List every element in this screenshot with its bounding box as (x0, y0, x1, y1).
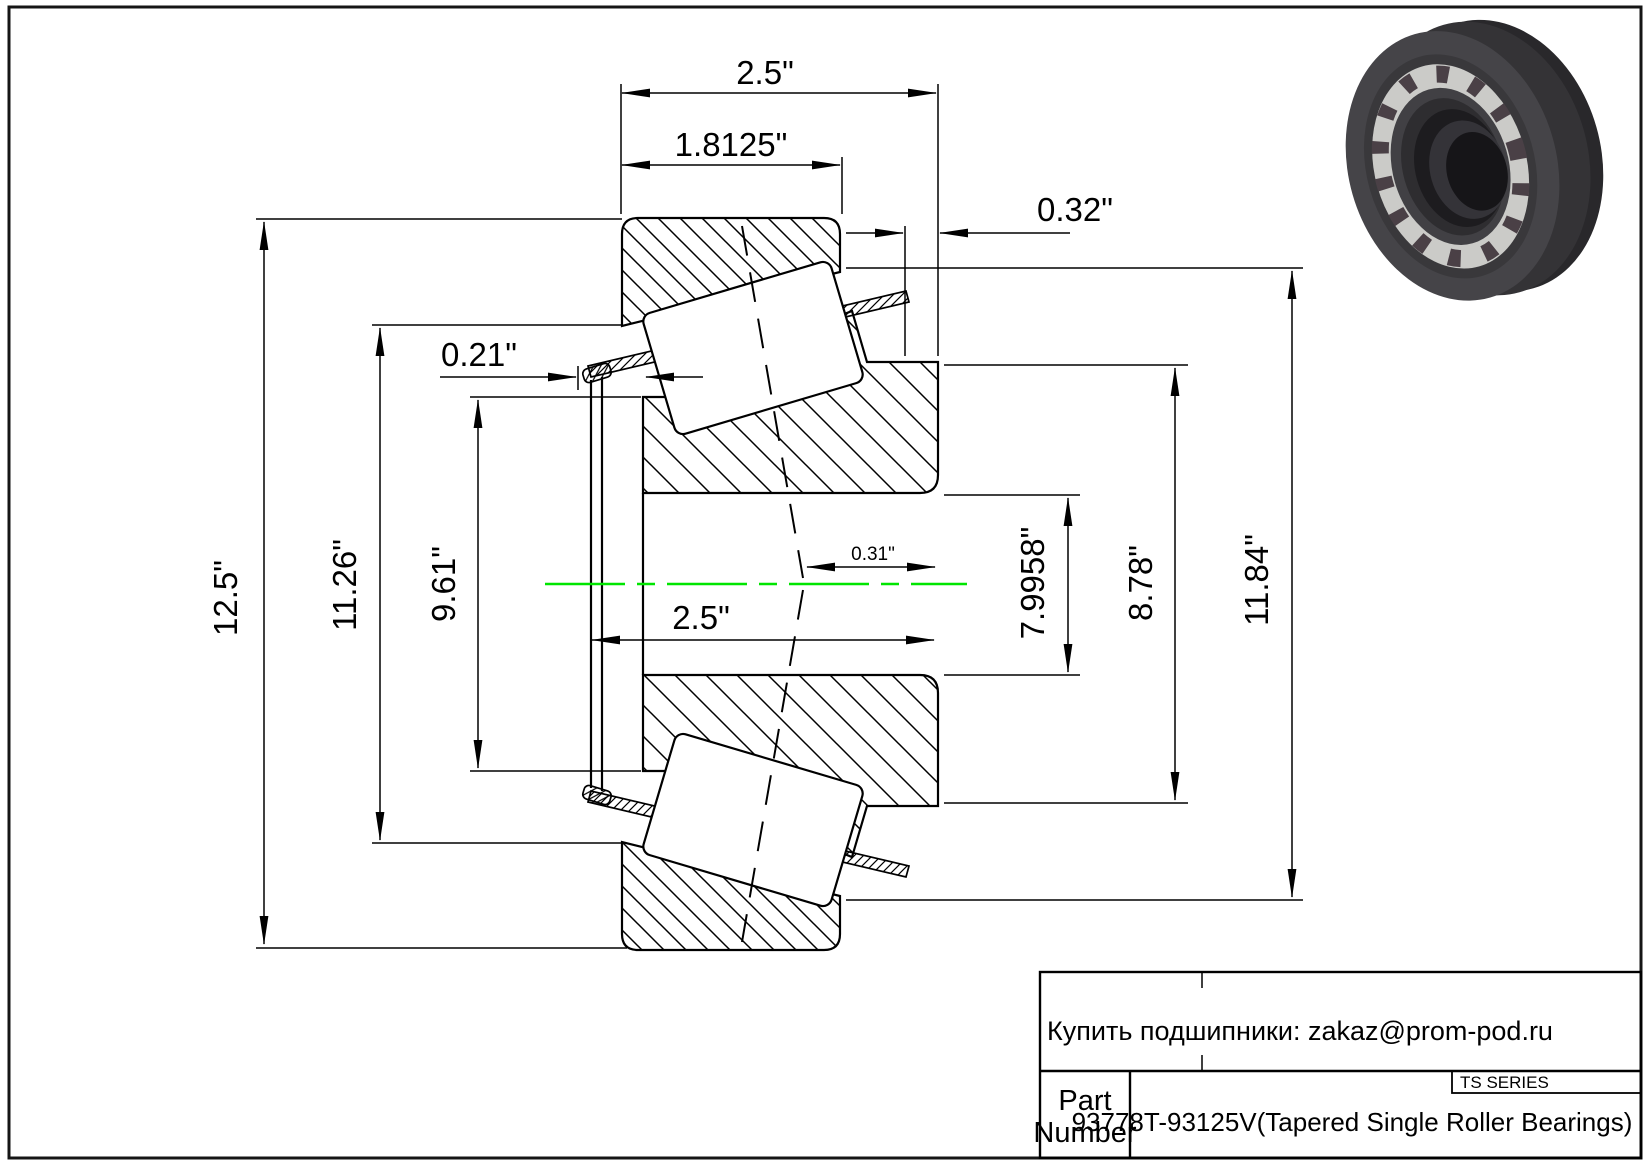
dim-left-race-diameter: 11.26" (326, 539, 363, 631)
dim-bore-width: 2.5" (672, 599, 730, 636)
engineering-drawing: 2.5" 1.8125" 0.32" 0.21" 2.5" 0.31" 12.5… (0, 0, 1649, 1167)
dim-outer-diameter: 12.5" (207, 560, 244, 636)
part-number-value: 93778T-93125V(Tapered Single Roller Bear… (1072, 1107, 1633, 1137)
dim-overall-width-top: 2.5" (736, 54, 794, 91)
dim-cone-front-od: 8.78" (1122, 545, 1159, 621)
dim-cage-back-standout: 0.21" (441, 336, 517, 373)
dim-cone-back-od: 9.61" (425, 546, 462, 622)
dim-bore-diameter: 7.9958" (1014, 527, 1051, 640)
dim-cup-race-diameter: 11.84" (1238, 534, 1275, 626)
contact-text: Купить подшипники: zakaz@prom-pod.ru (1047, 1016, 1553, 1046)
dim-cup-front-standout: 0.32" (1037, 191, 1113, 228)
dim-cup-width: 1.8125" (675, 126, 788, 163)
series-label: TS SERIES (1460, 1073, 1549, 1092)
dim-center-offset: 0.31" (851, 544, 895, 565)
